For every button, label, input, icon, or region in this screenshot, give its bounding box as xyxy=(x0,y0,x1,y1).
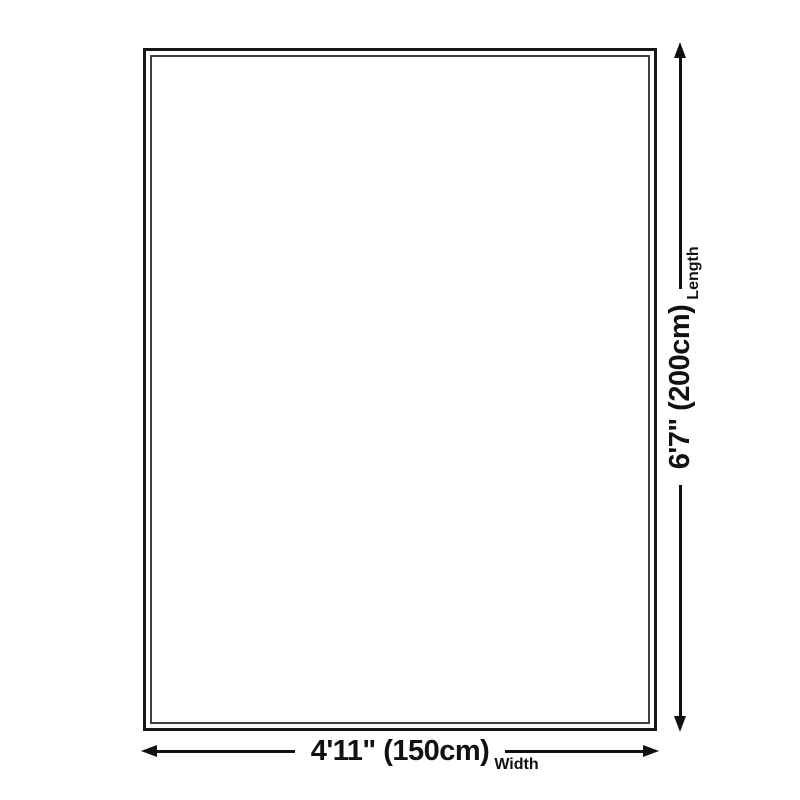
arrow-down-icon xyxy=(674,716,686,732)
length-dimension-line-bottom xyxy=(679,485,682,716)
length-dimension-line-top xyxy=(679,58,682,289)
length-value: 6'7" (200cm) xyxy=(664,305,696,470)
width-dimension-line-left xyxy=(157,750,295,753)
length-dimension: 6'7" (200cm) Length xyxy=(660,42,700,732)
rug-dimension-diagram: 4'11" (150cm) Width 6'7" (200cm) Length xyxy=(0,0,800,800)
rug-outline xyxy=(143,48,657,731)
length-axis-label: Length xyxy=(686,246,702,299)
arrow-up-icon xyxy=(674,42,686,58)
width-dimension-label: 4'11" (150cm) Width xyxy=(311,737,490,766)
rug-inner-border xyxy=(150,55,650,724)
arrow-right-icon xyxy=(643,745,659,757)
width-axis-label: Width xyxy=(494,757,538,773)
arrow-left-icon xyxy=(141,745,157,757)
width-dimension: 4'11" (150cm) Width xyxy=(141,731,659,771)
width-dimension-line-right xyxy=(505,750,643,753)
length-dimension-label: 6'7" (200cm) Length xyxy=(666,305,695,470)
width-value: 4'11" (150cm) xyxy=(311,735,490,767)
